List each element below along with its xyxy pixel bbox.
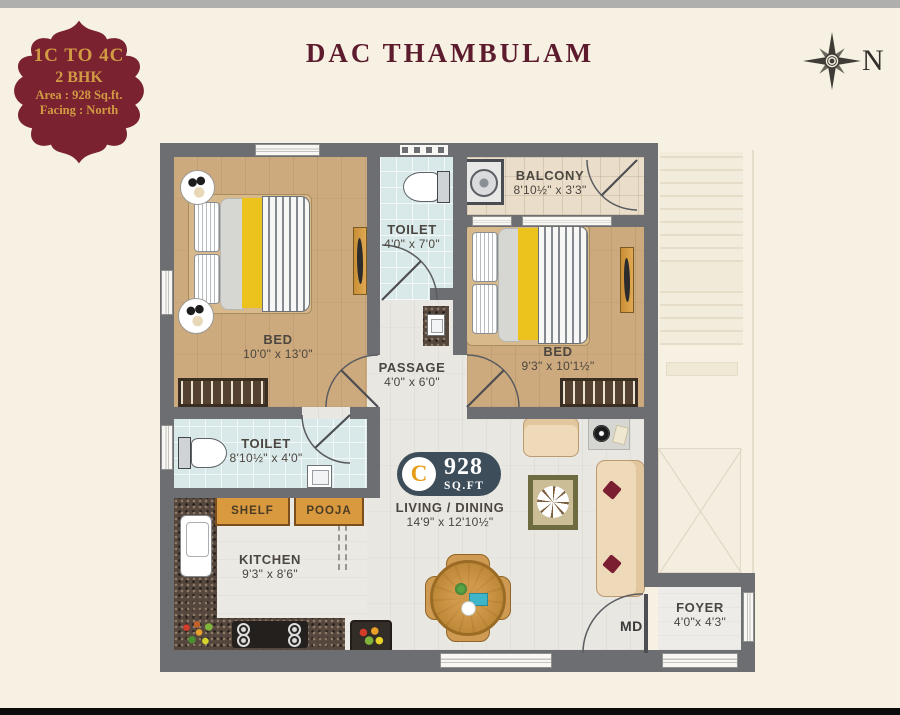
compass-north-label: N [862,44,884,78]
unit-area: Area : 928 Sq.ft. [8,88,150,104]
balcony-label: BALCONY 8'10½" x 3'3" [513,168,586,197]
bottom-border-bar [0,708,900,715]
floor-plan-page: 1C TO 4C 2 BHK Area : 928 Sq.ft. Facing … [0,0,900,715]
top-border-bar [0,0,900,8]
living-label: LIVING / DINING 14'9" x 12'10½" [396,500,505,529]
main-door-label: MD [620,618,643,634]
toilet1-label: TOILET 4'0" x 7'0" [384,222,440,251]
kitchen-label: KITCHEN 9'3" x 8'6" [239,552,301,581]
foyer-label: FOYER 4'0"x 4'3" [674,600,726,629]
unit-facing: Facing : North [8,103,150,119]
area-badge: C 928 SQ.FT [397,452,501,496]
toilet2-label: TOILET 8'10½" x 4'0" [229,436,302,465]
bed1-label: BED 10'0" x 13'0" [243,332,313,361]
passage-label: PASSAGE 4'0" x 6'0" [379,360,446,389]
bed2-label: BED 9'3" x 10'1½" [521,344,594,373]
compass-icon [798,26,866,96]
area-badge-text: 928 SQ.FT [444,455,484,493]
unit-type: 2 BHK [8,68,150,88]
page-title: DAC THAMBULAM [0,38,900,69]
block-letter-badge: C [402,457,436,491]
door-arcs [160,130,757,672]
floor-plan: SHELF POOJA [160,130,757,672]
